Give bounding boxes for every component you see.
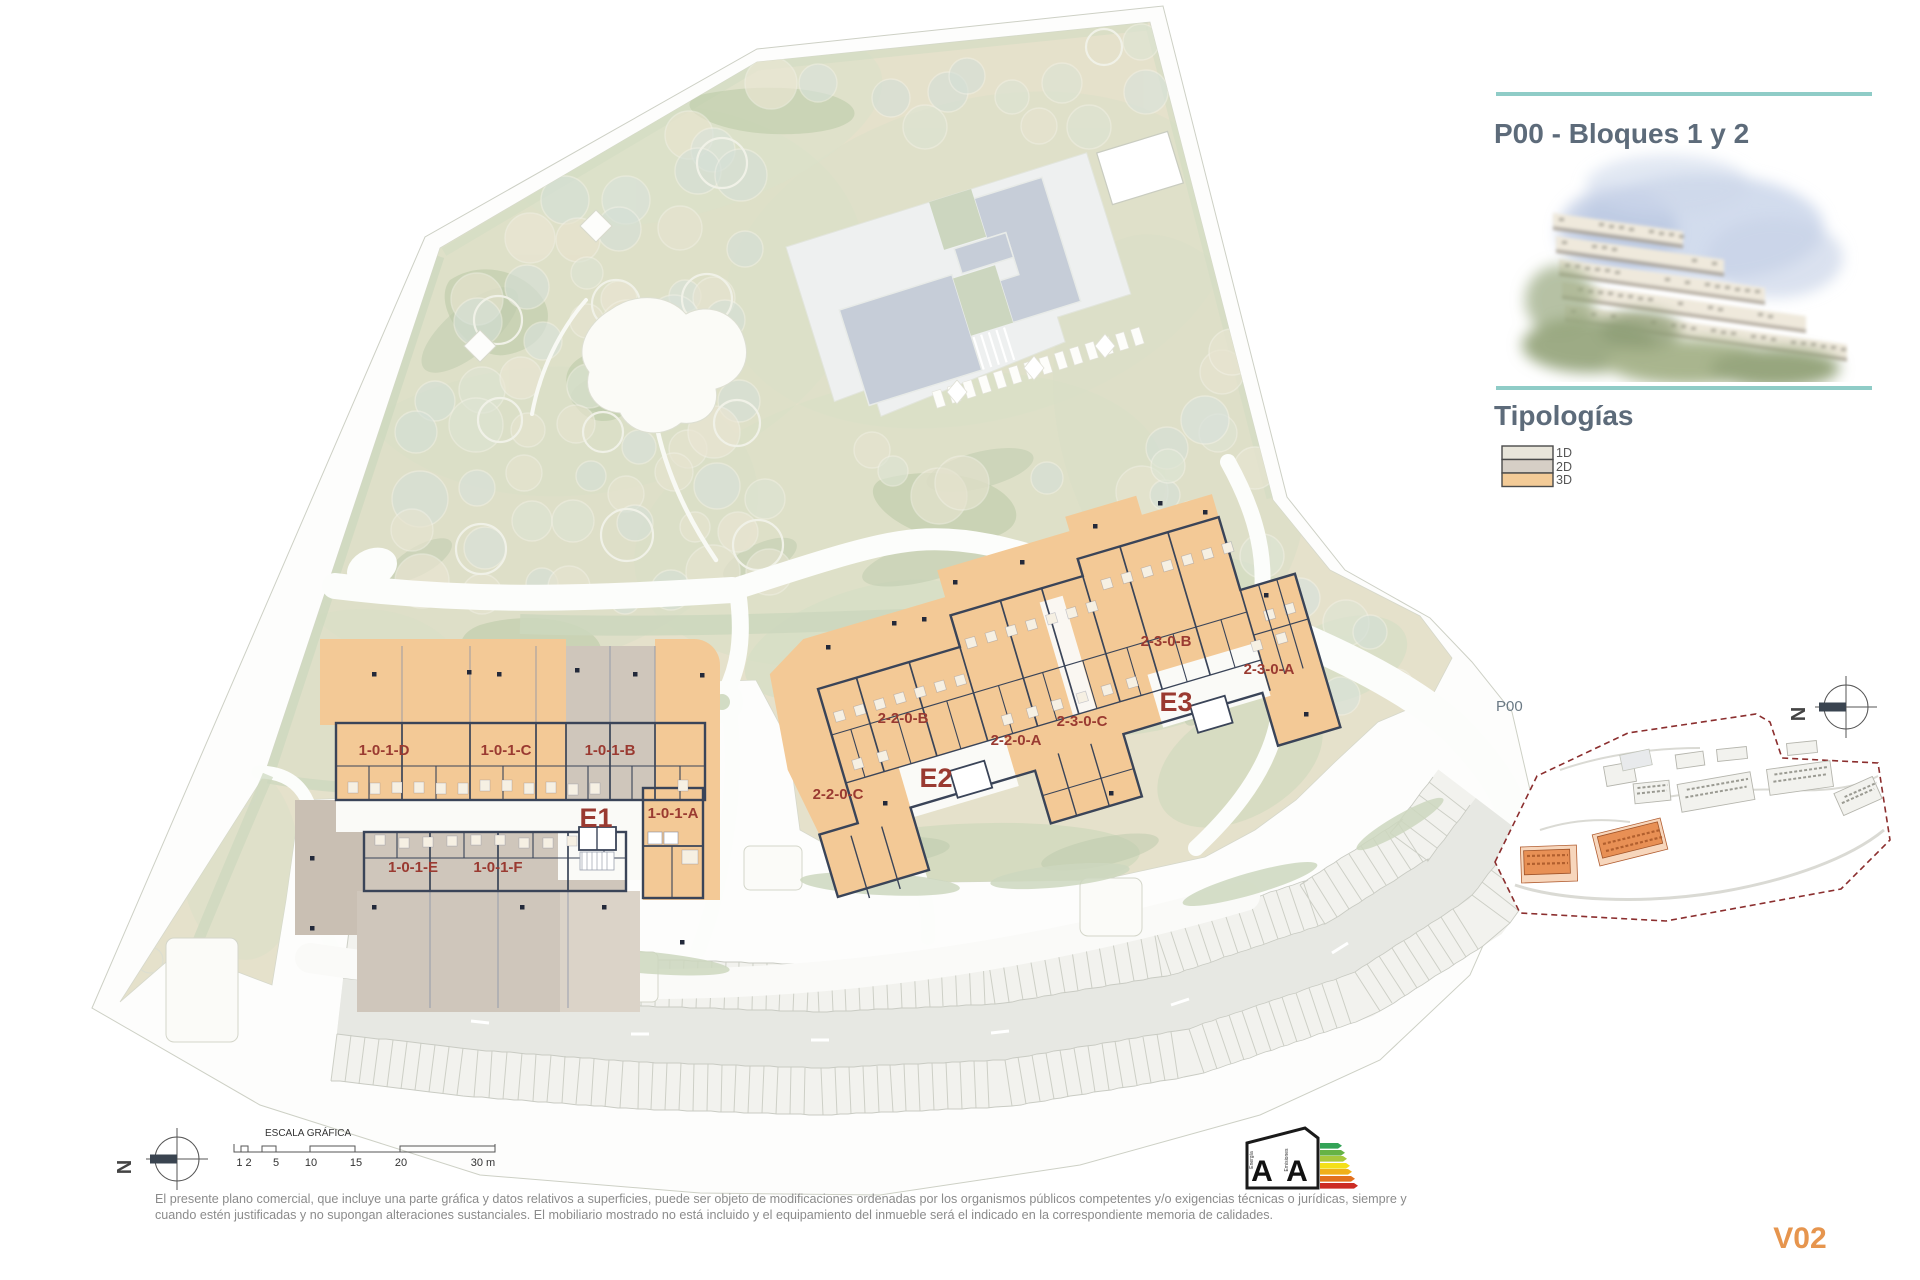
- svg-text:1-0-1-F: 1-0-1-F: [473, 859, 522, 876]
- svg-text:E3: E3: [1159, 687, 1192, 717]
- svg-text:15: 15: [350, 1157, 362, 1169]
- svg-text:Tipologías: Tipologías: [1494, 400, 1634, 431]
- svg-text:N: N: [1788, 707, 1810, 721]
- svg-text:V02: V02: [1773, 1222, 1826, 1255]
- svg-text:2-2-0-B: 2-2-0-B: [878, 710, 929, 727]
- svg-text:10: 10: [305, 1157, 317, 1169]
- svg-text:2-3-0-B: 2-3-0-B: [1141, 633, 1192, 650]
- svg-text:E1: E1: [579, 803, 612, 833]
- svg-text:P00 - Bloques 1 y 2: P00 - Bloques 1 y 2: [1494, 118, 1749, 149]
- svg-text:1-0-1-D: 1-0-1-D: [359, 742, 410, 759]
- svg-text:3D: 3D: [1556, 473, 1572, 487]
- svg-text:N: N: [114, 1160, 136, 1174]
- svg-text:1 2: 1 2: [236, 1157, 251, 1169]
- svg-text:cuando estén justificadas y no: cuando estén justificadas y no supongan …: [155, 1208, 1273, 1222]
- svg-text:Emisiones: Emisiones: [1284, 1148, 1290, 1172]
- svg-text:El presente plano comercial, q: El presente plano comercial, que incluye…: [155, 1192, 1407, 1206]
- svg-text:2-2-0-A: 2-2-0-A: [991, 732, 1042, 749]
- svg-text:5: 5: [273, 1157, 279, 1169]
- svg-text:P00: P00: [1496, 698, 1523, 715]
- svg-text:ESCALA GRÁFICA: ESCALA GRÁFICA: [265, 1126, 351, 1139]
- svg-text:2-3-0-C: 2-3-0-C: [1057, 713, 1108, 730]
- svg-text:2-3-0-A: 2-3-0-A: [1244, 661, 1295, 678]
- svg-text:1-0-1-B: 1-0-1-B: [585, 742, 636, 759]
- svg-text:20: 20: [395, 1157, 407, 1169]
- svg-text:Energía: Energía: [1249, 1151, 1255, 1169]
- svg-text:1D: 1D: [1556, 446, 1572, 460]
- svg-text:1-0-1-A: 1-0-1-A: [648, 805, 699, 822]
- svg-text:2D: 2D: [1556, 460, 1572, 474]
- svg-text:E2: E2: [919, 763, 952, 793]
- svg-text:2-2-0-C: 2-2-0-C: [813, 786, 864, 803]
- svg-text:1-0-1-E: 1-0-1-E: [388, 859, 438, 876]
- svg-text:1-0-1-C: 1-0-1-C: [481, 742, 532, 759]
- svg-text:30 m: 30 m: [471, 1157, 495, 1169]
